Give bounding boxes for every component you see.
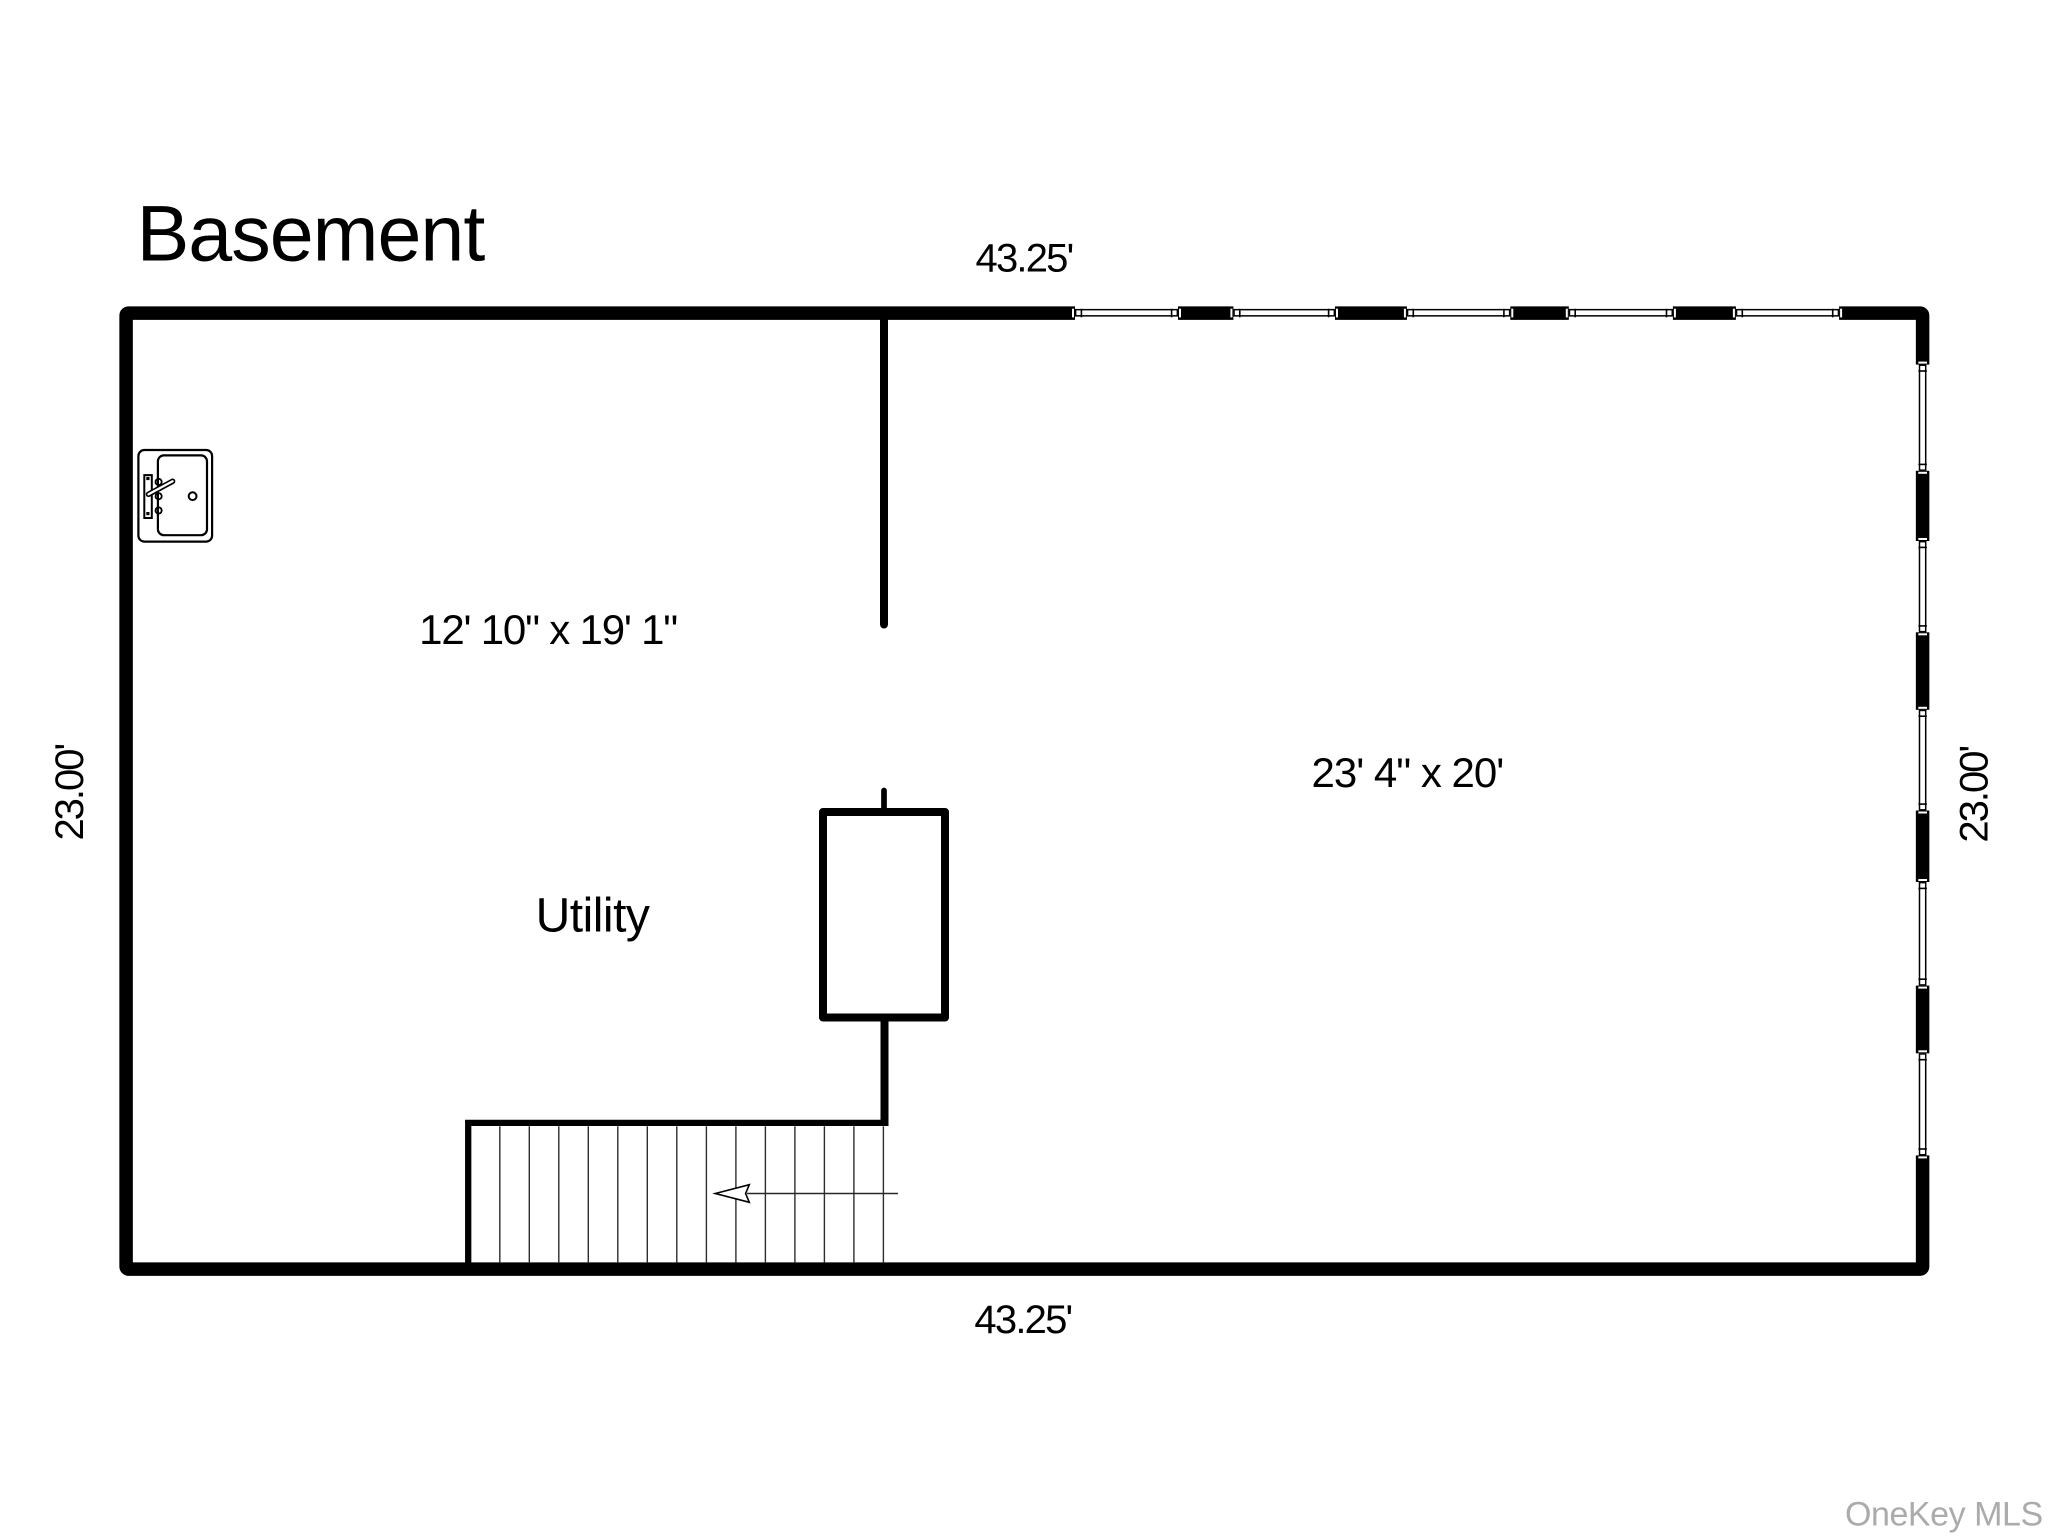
svg-text:23.00': 23.00': [48, 744, 92, 840]
svg-text:23' 4" x 20': 23' 4" x 20': [1312, 749, 1504, 796]
svg-text:OneKey MLS: OneKey MLS: [1845, 1496, 2043, 1534]
svg-text:43.25': 43.25': [976, 237, 1073, 281]
svg-text:43.25': 43.25': [974, 1298, 1071, 1342]
svg-text:Basement: Basement: [137, 189, 486, 278]
svg-text:23.00': 23.00': [1952, 747, 1996, 843]
svg-text:12' 10" x 19' 1": 12' 10" x 19' 1": [419, 606, 677, 653]
svg-text:Utility: Utility: [536, 890, 650, 943]
